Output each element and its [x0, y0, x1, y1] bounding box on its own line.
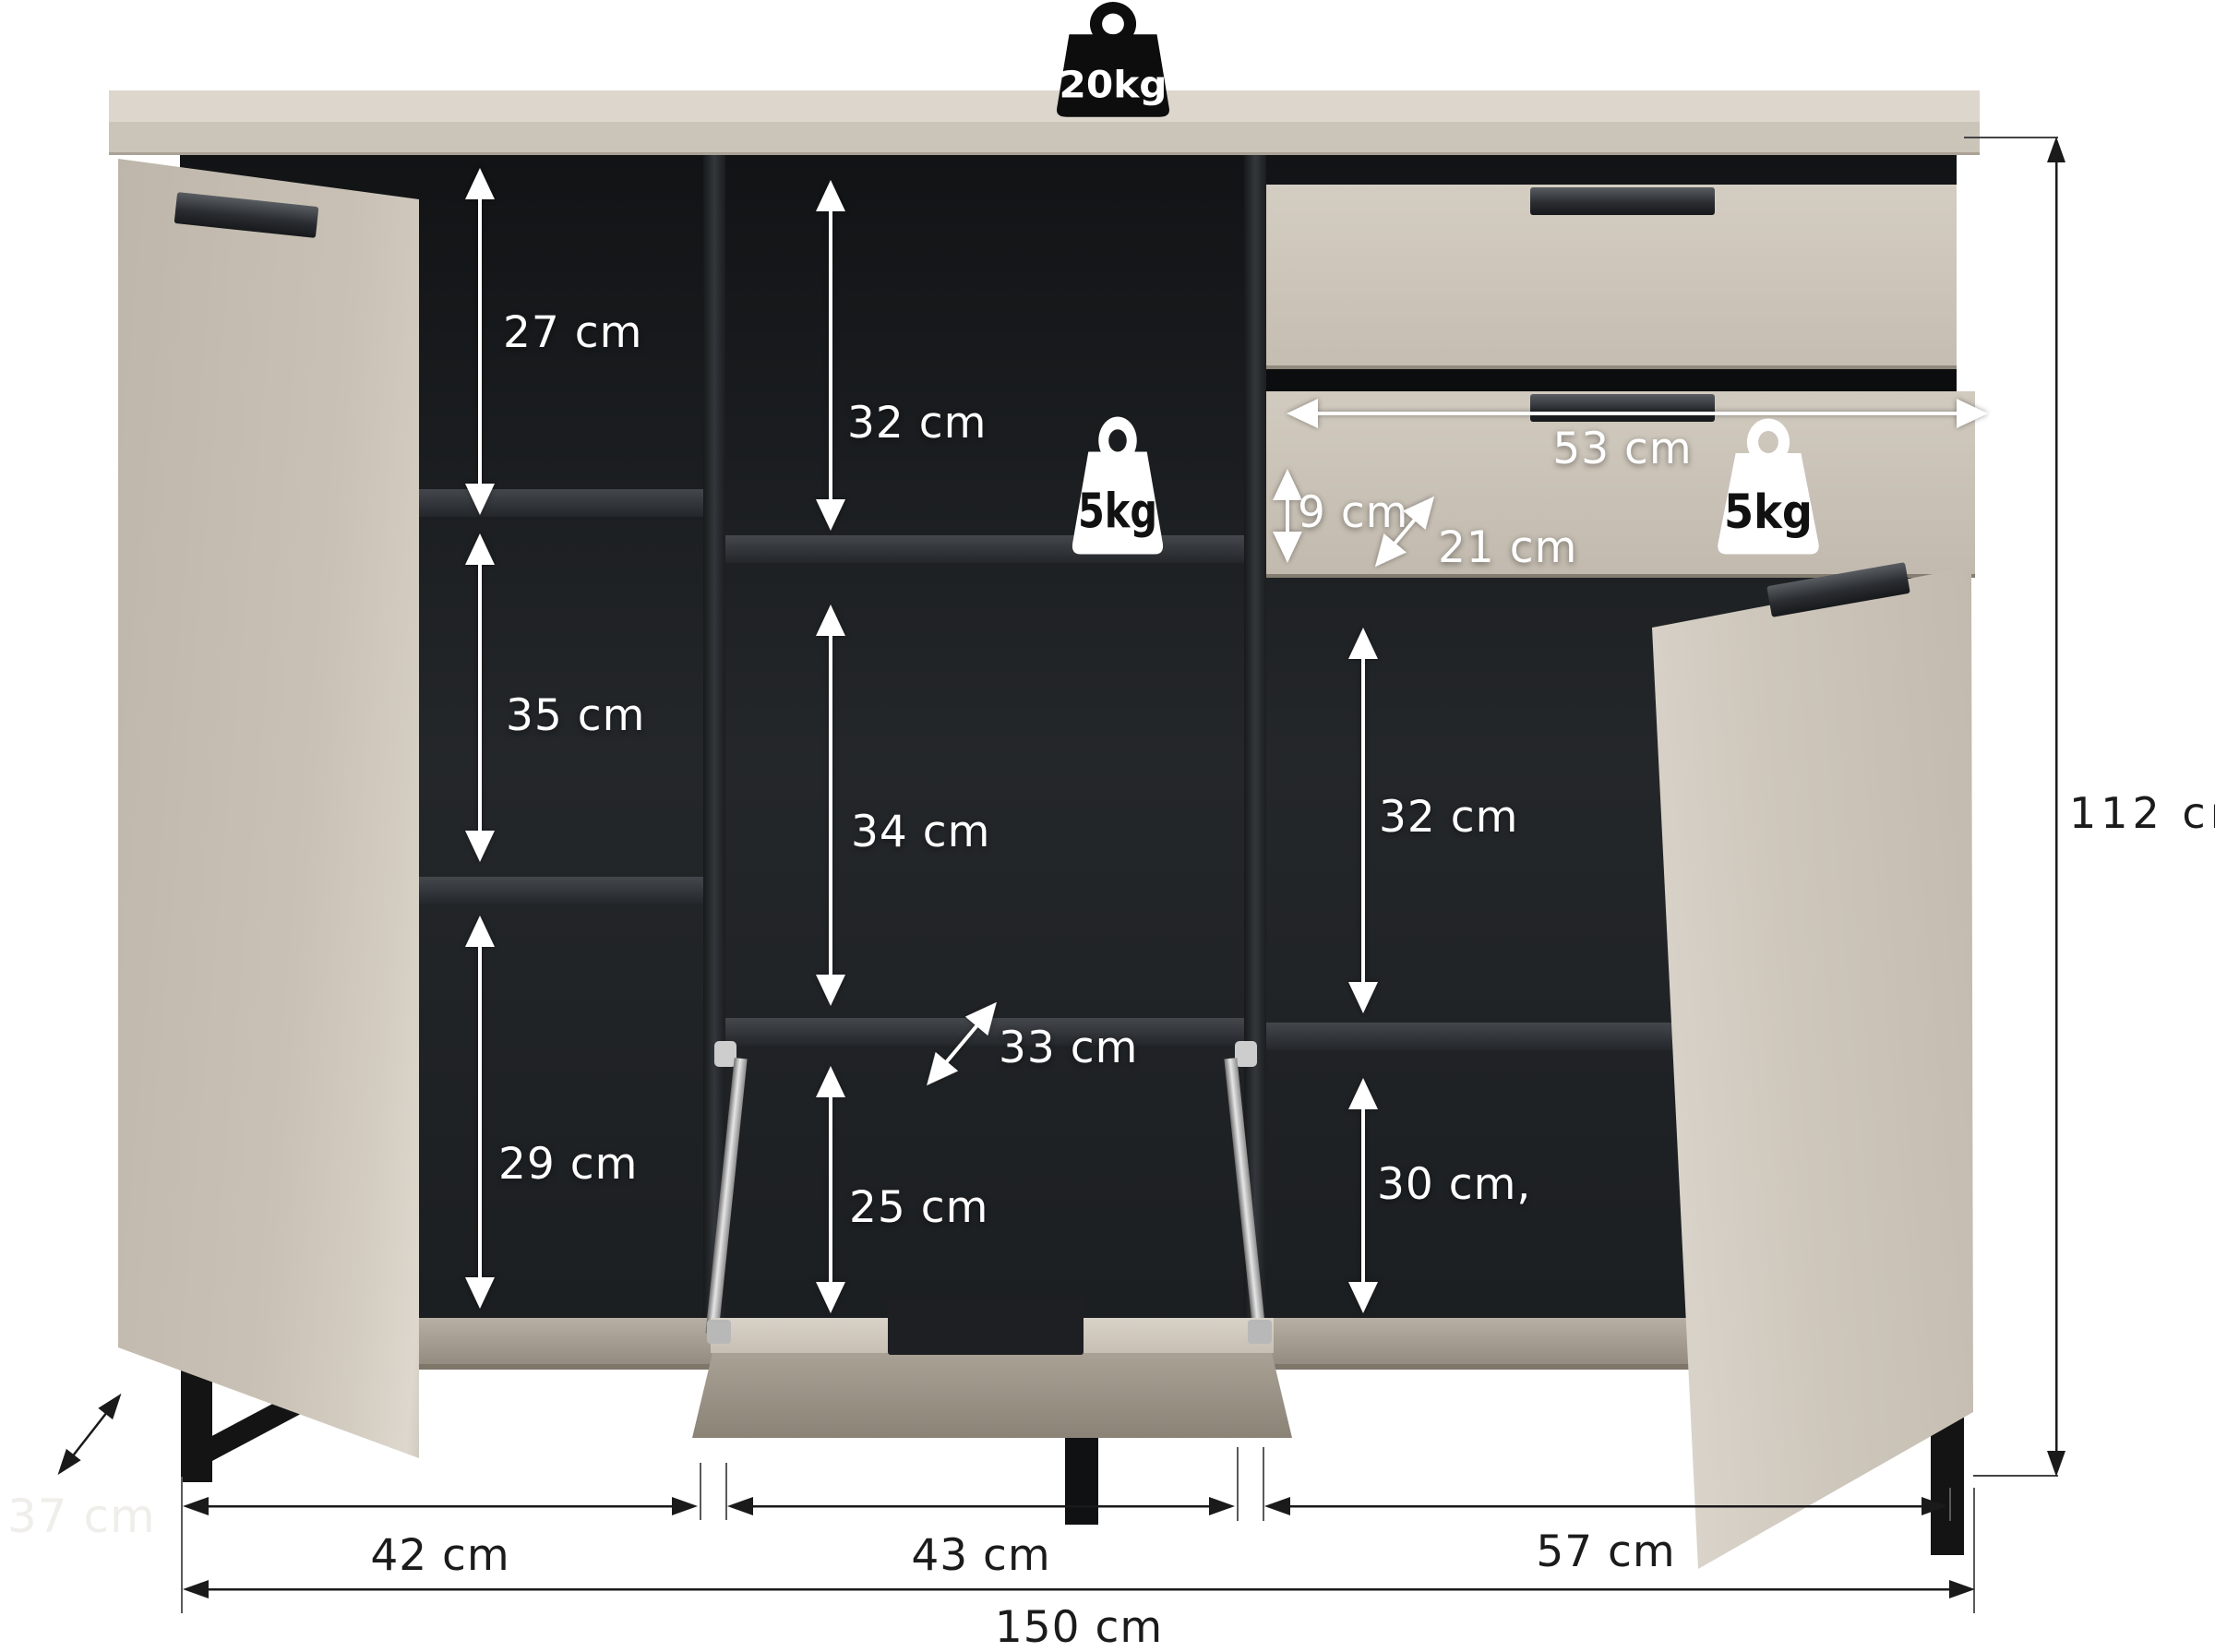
dim-arrow-right-top: [1348, 628, 1378, 1013]
dim-label-drawer-width: 53 cm: [1552, 427, 1692, 471]
dimension-diagram: 27 cm 35 cm 29 cm 32 cm 34 cm 33 cm 25 c…: [0, 0, 2215, 1652]
divider-left: [703, 152, 725, 1323]
gas-strut-right-fitting: [1235, 1041, 1257, 1067]
dim-arrow-center-middle: [816, 605, 845, 1006]
dim-arrow-depth: [46, 1384, 133, 1484]
dim-arrow-section-center: [727, 1491, 1235, 1521]
dim-label-center-middle: 34 cm: [851, 810, 990, 854]
dim-label-center-depth: 33 cm: [999, 1026, 1138, 1070]
flap-hinge-right: [1248, 1320, 1272, 1344]
weight-5kg-shelf-label: 5kg: [1078, 485, 1157, 540]
flap-door-handle: [888, 1298, 1084, 1355]
dim-label-height: 112 cm: [2069, 792, 2215, 834]
dim-label-section-left: 42 cm: [370, 1534, 509, 1577]
dim-label-depth: 37 cm: [7, 1493, 156, 1539]
flap-hinge-left: [707, 1320, 731, 1344]
dim-label-right-bottom: 30 cm,: [1377, 1163, 1531, 1206]
weight-5kg-drawer-icon: 5kg: [1706, 417, 1831, 556]
dim-label-section-right: 57 cm: [1536, 1530, 1675, 1574]
ext-line-bottom-4: [1237, 1447, 1239, 1521]
dim-arrow-left-middle: [465, 533, 495, 862]
dim-label-section-center: 43 cm: [911, 1534, 1050, 1577]
left-door: [115, 155, 422, 1461]
dim-label-left-bottom: 29 cm: [498, 1143, 638, 1186]
right-door: [1650, 561, 1975, 1576]
dim-arrow-section-right: [1264, 1491, 1947, 1521]
weight-5kg-shelf-icon: 5kg: [1061, 415, 1174, 556]
dim-arrow-section-left: [183, 1491, 698, 1521]
dim-label-right-top: 32 cm: [1379, 796, 1518, 839]
dim-arrow-left-bottom: [465, 916, 495, 1309]
weight-20kg-icon: 20kg: [1052, 2, 1174, 118]
dim-arrow-right-bottom: [1348, 1078, 1378, 1313]
ext-line-bottom-2: [700, 1463, 701, 1520]
flap-door-underside: [690, 1353, 1294, 1438]
dim-label-center-top: 32 cm: [847, 401, 987, 445]
dim-arrow-left-top: [465, 168, 495, 515]
top-panel-edge: [109, 122, 1980, 155]
dim-label-left-top: 27 cm: [503, 311, 642, 354]
drawer-top-handle: [1530, 187, 1715, 215]
dim-label-center-bottom: 25 cm: [849, 1186, 988, 1229]
top-panel-surface: [109, 90, 1980, 122]
weight-20kg-label: 20kg: [1059, 63, 1167, 106]
dim-label-drawer-depth: 21 cm: [1438, 526, 1577, 569]
dim-arrow-height: [2041, 137, 2071, 1477]
drawer-gap: [1266, 369, 1957, 391]
dim-label-total-width: 150 cm: [995, 1606, 1163, 1649]
shelf-right: [1266, 1023, 1674, 1050]
weight-5kg-drawer-label: 5kg: [1724, 485, 1813, 540]
dim-arrow-center-top: [816, 180, 845, 531]
ext-line-bottom-6: [1949, 1488, 1951, 1521]
dim-label-left-middle: 35 cm: [506, 694, 645, 737]
divider-right: [1244, 152, 1266, 1323]
dim-arrow-total-width: [183, 1574, 1975, 1604]
dim-arrow-center-bottom: [816, 1066, 845, 1313]
